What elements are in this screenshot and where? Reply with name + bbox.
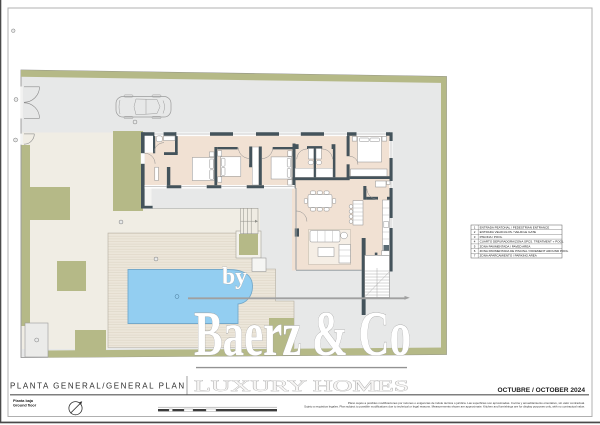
svg-text:CUARTO DEPURADORA/ZONA SPCS. T: CUARTO DEPURADORA/ZONA SPCS. TREATMENT +… bbox=[480, 240, 564, 244]
svg-text:Ground floor: Ground floor bbox=[13, 404, 37, 408]
svg-text:Sujeto a requisitos legales. P: Sujeto a requisitos legales. Plan subjec… bbox=[304, 404, 585, 408]
svg-text:ZONA PAVIMENTADA DE PISCINA /: ZONA PAVIMENTADA DE PISCINA / PAVEMENT A… bbox=[480, 249, 569, 253]
svg-text:Baerz & Co: Baerz & Co bbox=[194, 299, 411, 369]
svg-text:OCTUBRE / OCTOBER 2024: OCTUBRE / OCTOBER 2024 bbox=[498, 387, 586, 394]
svg-text:ZONA APARCAMIENTO / PARKING AR: ZONA APARCAMIENTO / PARKING AREA bbox=[480, 254, 537, 258]
svg-text:PLANTA GENERAL/GENERAL PLAN: PLANTA GENERAL/GENERAL PLAN bbox=[10, 382, 186, 391]
svg-text:ZONA PAVIMENTADA / PAVED AREA: ZONA PAVIMENTADA / PAVED AREA bbox=[480, 244, 531, 248]
svg-text:by: by bbox=[222, 264, 247, 290]
svg-text:Planta baja: Planta baja bbox=[13, 399, 34, 403]
svg-text:PISCINA / POOL: PISCINA / POOL bbox=[480, 235, 503, 239]
svg-text:ENTRADA PEATONAL / PEDESTRIAN: ENTRADA PEATONAL / PEDESTRIAN ENTRANCE bbox=[480, 225, 550, 229]
svg-text:ENTRADA VEHICULOS / VEHICLE GA: ENTRADA VEHICULOS / VEHICLE GATE bbox=[480, 230, 536, 234]
svg-text:LUXURY HOMES: LUXURY HOMES bbox=[194, 378, 409, 395]
